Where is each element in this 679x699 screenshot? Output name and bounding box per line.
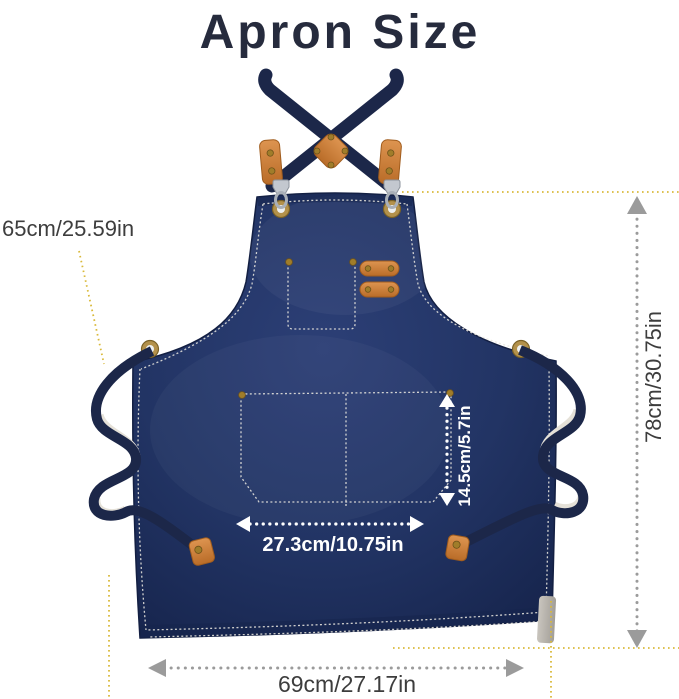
rivet xyxy=(365,287,371,293)
shoulder-straps xyxy=(259,75,402,186)
strap-length-label: 65cm/25.59in xyxy=(2,216,134,241)
pen-loop-bottom xyxy=(360,282,399,297)
rivet xyxy=(387,150,394,157)
height-label: 78cm/30.75in xyxy=(641,311,666,443)
bottom-width-label: 69cm/27.17in xyxy=(278,671,416,697)
strap-end-leather-right xyxy=(378,139,402,185)
tie-end-hanging xyxy=(537,596,556,644)
fabric-sheen xyxy=(150,335,450,525)
apron-size-diagram: Apron Size xyxy=(0,0,679,699)
leather-strap-end xyxy=(378,139,402,185)
rivet xyxy=(342,148,348,154)
rivet xyxy=(267,150,274,157)
rivet xyxy=(388,287,394,293)
pocket-width-label: 27.3cm/10.75in xyxy=(262,534,403,556)
page-title: Apron Size xyxy=(200,6,481,59)
apron-body xyxy=(133,193,556,638)
rivet xyxy=(328,162,334,168)
leather-tab-right xyxy=(445,534,470,561)
arrow-down-icon xyxy=(627,630,647,648)
arrow-up-icon xyxy=(627,196,647,214)
bottom-width-measure: 69cm/27.17in xyxy=(148,659,524,697)
rivet xyxy=(268,167,275,174)
height-measure: 78cm/30.75in xyxy=(627,196,666,648)
pocket-depth-label: 14.5cm/5.7in xyxy=(455,405,474,506)
diamond-patch xyxy=(311,131,351,171)
arrow-left-icon xyxy=(148,659,166,677)
pen-loop-top xyxy=(360,261,399,276)
guide-diagonal-left xyxy=(79,251,104,364)
rivet xyxy=(286,259,293,266)
rivet xyxy=(388,266,394,272)
arrow-right-icon xyxy=(506,659,524,677)
rivet xyxy=(328,134,334,140)
rivet xyxy=(365,266,371,272)
strap-end-leather-left xyxy=(259,139,283,185)
rivet xyxy=(314,148,320,154)
rivet xyxy=(239,392,246,399)
leather-strap-end xyxy=(259,139,283,185)
rivet xyxy=(386,167,393,174)
apron-size-chart: Apron Size xyxy=(0,0,679,699)
rivet xyxy=(350,259,357,266)
